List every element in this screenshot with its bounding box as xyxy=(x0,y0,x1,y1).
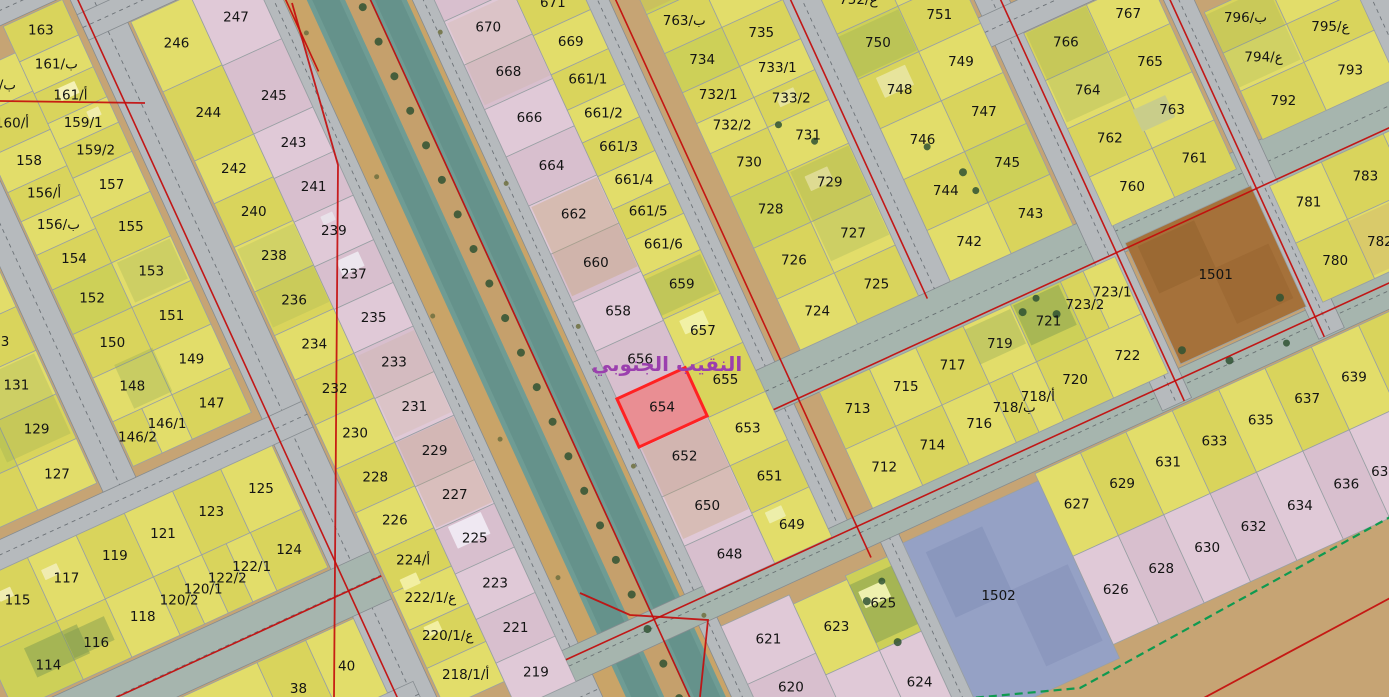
parcel-label-639: 639 xyxy=(1341,370,1367,386)
parcel-label-238: 238 xyxy=(261,248,287,264)
parcel-label-730: 730 xyxy=(736,154,762,170)
parcel-label-724: 724 xyxy=(804,304,830,320)
parcel-label-127: 127 xyxy=(44,466,70,482)
parcel-label-661/4: 661/4 xyxy=(614,172,653,188)
parcel-label-119: 119 xyxy=(102,548,128,564)
place-name-label: النقيب الجنوبي xyxy=(592,352,742,377)
parcel-label-231: 231 xyxy=(401,399,427,415)
parcel-label-726: 726 xyxy=(781,253,807,269)
parcel-label-148: 148 xyxy=(119,378,145,394)
parcel-label-743: 743 xyxy=(1018,206,1044,222)
parcel-label-233: 233 xyxy=(381,354,407,370)
parcel-label-1502: 1502 xyxy=(981,588,1015,604)
parcel-label-762: 762 xyxy=(1097,131,1123,147)
parcel-label-658: 658 xyxy=(605,303,631,319)
parcel-label-158: 158 xyxy=(16,153,42,169)
parcel-label-38: 38 xyxy=(290,681,307,697)
parcel-label-635: 635 xyxy=(1248,412,1274,428)
parcel-label-246: 246 xyxy=(164,35,190,51)
parcel-label-117: 117 xyxy=(54,570,80,586)
parcel-label-764: 764 xyxy=(1075,82,1101,98)
parcel-label-763: 763 xyxy=(1159,102,1185,118)
parcel-label-115: 115 xyxy=(5,593,31,609)
parcel-label-236: 236 xyxy=(281,292,307,308)
parcel-label-225: 225 xyxy=(462,531,488,547)
parcel-label-633: 633 xyxy=(1202,434,1228,450)
parcel-label-161/ب: 161/ب xyxy=(35,56,78,72)
parcel-label-631: 631 xyxy=(1155,455,1181,471)
parcel-label-621: 621 xyxy=(756,632,782,648)
parcel-label-662: 662 xyxy=(561,207,587,223)
parcel-label-749: 749 xyxy=(948,54,974,70)
parcel-label-747: 747 xyxy=(971,104,997,120)
parcel-label-125: 125 xyxy=(248,481,274,497)
parcel-label-765: 765 xyxy=(1137,54,1163,70)
parcel-label-244: 244 xyxy=(195,105,221,121)
parcel-label-767: 767 xyxy=(1115,6,1141,22)
parcel-label-657: 657 xyxy=(690,323,716,339)
parcel-label-152: 152 xyxy=(79,291,105,307)
parcel-label-224/أ: 224/أ xyxy=(396,550,430,568)
parcel-label-1501: 1501 xyxy=(1198,267,1232,283)
parcel-label-649: 649 xyxy=(779,517,805,533)
parcel-label-745: 745 xyxy=(994,155,1020,171)
parcel-label-712: 712 xyxy=(871,459,897,475)
parcel-label-752/ع: 752/ع xyxy=(839,0,877,8)
parcel-label-124: 124 xyxy=(276,542,302,558)
parcel-label-237: 237 xyxy=(341,267,367,283)
parcel-label-623: 623 xyxy=(824,619,850,635)
parcel-label-661/2: 661/2 xyxy=(584,106,623,122)
parcel-label-155: 155 xyxy=(118,219,144,235)
parcel-label-629: 629 xyxy=(1109,476,1135,492)
parcel-label-235: 235 xyxy=(361,310,387,326)
parcel-label-243: 243 xyxy=(281,135,307,151)
parcel-label-159/2: 159/2 xyxy=(76,142,115,158)
parcel-label-750: 750 xyxy=(865,35,891,51)
parcel-label-218/1/أ: 218/1/أ xyxy=(442,665,489,683)
parcel-label-228: 228 xyxy=(362,470,388,486)
parcel-label-131: 131 xyxy=(4,378,30,394)
map-viewport[interactable]: 163161/ب161/أ159/1159/215715515315114914… xyxy=(0,0,1389,697)
parcel-label-146/1: 146/1 xyxy=(148,416,187,432)
parcel-label-792: 792 xyxy=(1270,93,1296,109)
parcel-label-794/ع: 794/ع xyxy=(1244,50,1282,66)
parcel-label-118: 118 xyxy=(130,609,156,625)
parcel-label-664: 664 xyxy=(539,158,565,174)
parcel-label-161/أ: 161/أ xyxy=(53,85,87,103)
parcel-label-247: 247 xyxy=(223,9,249,25)
parcel-label-223: 223 xyxy=(482,575,508,591)
parcel-label-783: 783 xyxy=(1352,169,1378,185)
parcel-label-723/1: 723/1 xyxy=(1093,285,1132,301)
parcel-label-661/5: 661/5 xyxy=(629,203,668,219)
parcel-label-634: 634 xyxy=(1287,498,1313,514)
parcel-label-653: 653 xyxy=(735,421,761,437)
parcel-label-116: 116 xyxy=(83,635,109,651)
parcel-label-719: 719 xyxy=(987,336,1013,352)
parcel-label-240: 240 xyxy=(241,204,267,220)
parcel-label-652: 652 xyxy=(672,448,698,464)
parcel-label-782: 782 xyxy=(1367,234,1389,250)
parcel-label-625: 625 xyxy=(870,596,896,612)
parcel-label-638: 638 xyxy=(1371,464,1389,480)
parcel-label-121: 121 xyxy=(150,526,176,542)
parcel-label-660: 660 xyxy=(583,255,609,271)
parcel-label-156/أ: 156/أ xyxy=(27,184,61,202)
parcel-label-157: 157 xyxy=(99,177,125,193)
parcel-label-147: 147 xyxy=(199,396,225,412)
parcel-label-650: 650 xyxy=(694,498,720,514)
parcel-label-732/2: 732/2 xyxy=(713,118,752,134)
parcel-label-630: 630 xyxy=(1194,540,1220,556)
parcel-label-620: 620 xyxy=(778,680,804,696)
parcel-label-720: 720 xyxy=(1062,372,1088,388)
parcel-label-727: 727 xyxy=(840,226,866,242)
parcel-label-781: 781 xyxy=(1296,195,1322,211)
parcel-label-153: 153 xyxy=(138,264,164,280)
parcel-label-671: 671 xyxy=(540,0,566,11)
parcel-label-129: 129 xyxy=(24,422,50,438)
parcel-label-245: 245 xyxy=(261,88,287,104)
parcel-label-239: 239 xyxy=(321,223,347,239)
parcel-label-156/ب: 156/ب xyxy=(37,217,80,233)
parcel-label-122/1: 122/1 xyxy=(232,559,271,575)
parcel-label-230: 230 xyxy=(342,426,368,442)
parcel-label-232: 232 xyxy=(322,381,348,397)
parcel-label-626: 626 xyxy=(1103,582,1129,598)
parcel-label-227: 227 xyxy=(442,487,468,503)
parcel-label-242: 242 xyxy=(221,161,247,177)
parcel-label-732/1: 732/1 xyxy=(699,87,738,103)
parcel-label-731: 731 xyxy=(795,127,821,143)
parcel-label-627: 627 xyxy=(1064,497,1090,513)
parcel-label-796/ب: 796/ب xyxy=(1224,10,1267,26)
parcel-label-154: 154 xyxy=(61,251,87,267)
parcel-label-661/1: 661/1 xyxy=(568,71,607,87)
parcel-label-715: 715 xyxy=(893,379,919,395)
parcel-label-226: 226 xyxy=(382,512,408,528)
parcel-label-670: 670 xyxy=(475,20,501,36)
parcel-label-718/أ: 718/أ xyxy=(1021,387,1055,405)
parcel-label-793: 793 xyxy=(1337,62,1363,78)
parcel-label-751: 751 xyxy=(926,7,952,23)
parcel-label-728: 728 xyxy=(758,202,784,218)
parcel-label-160/ب: 160/ب xyxy=(0,78,16,94)
parcel-label-766: 766 xyxy=(1053,35,1079,51)
parcel-label-733/1: 733/1 xyxy=(758,60,797,76)
parcel-label-666: 666 xyxy=(517,110,543,126)
parcel-label-163: 163 xyxy=(28,23,54,39)
parcel-label-648: 648 xyxy=(717,547,743,563)
parcel-label-721: 721 xyxy=(1036,314,1062,330)
parcel-label-628: 628 xyxy=(1148,561,1174,577)
map-canvas[interactable]: 163161/ب161/أ159/1159/215715515315114914… xyxy=(0,0,1389,697)
parcel-label-729: 729 xyxy=(817,175,843,191)
parcel-label-734: 734 xyxy=(689,52,715,68)
parcel-label-624: 624 xyxy=(907,675,933,691)
parcel-label-725: 725 xyxy=(863,276,889,292)
parcel-label-746: 746 xyxy=(910,132,936,148)
parcel-label-133: 133 xyxy=(0,334,9,350)
parcel-label-717: 717 xyxy=(940,358,966,374)
parcel-label-221: 221 xyxy=(503,620,529,636)
parcel-label-714: 714 xyxy=(919,437,945,453)
parcel-label-651: 651 xyxy=(757,468,783,484)
parcel-label-241: 241 xyxy=(301,179,327,195)
parcel-label-632: 632 xyxy=(1241,519,1267,535)
parcel-label-761: 761 xyxy=(1181,151,1207,167)
parcel-label-661/3: 661/3 xyxy=(599,139,638,155)
parcel-label-744: 744 xyxy=(933,183,959,199)
parcel-label-661/6: 661/6 xyxy=(644,237,683,253)
parcel-label-636: 636 xyxy=(1333,477,1359,493)
parcel-label-735: 735 xyxy=(748,25,774,41)
parcel-label-722: 722 xyxy=(1115,348,1141,364)
parcel-label-123: 123 xyxy=(198,504,224,520)
parcel-label-229: 229 xyxy=(422,443,448,459)
parcel-label-220/1/ع: 220/1/ع xyxy=(422,628,474,644)
parcel-label-713: 713 xyxy=(845,401,871,417)
parcel-label-219: 219 xyxy=(523,664,549,680)
parcel-label-760: 760 xyxy=(1119,179,1145,195)
parcel-label-40: 40 xyxy=(338,659,355,675)
parcel-label-149: 149 xyxy=(178,351,204,367)
parcel-label-151: 151 xyxy=(159,308,185,324)
parcel-label-222/1/ع: 222/1/ع xyxy=(405,590,457,606)
parcel-label-150: 150 xyxy=(99,335,125,351)
parcel-label-763/ب: 763/ب xyxy=(663,13,706,29)
parcel-label-742: 742 xyxy=(956,234,982,250)
parcel-label-637: 637 xyxy=(1294,391,1320,407)
parcel-label-654: 654 xyxy=(649,399,675,415)
parcel-label-733/2: 733/2 xyxy=(772,91,811,107)
parcel-label-160/أ: 160/أ xyxy=(0,114,29,132)
parcel-label-716: 716 xyxy=(966,416,992,432)
parcel-label-659: 659 xyxy=(669,277,695,293)
parcel-label-114: 114 xyxy=(36,658,62,674)
parcel-label-780: 780 xyxy=(1322,253,1348,269)
parcel-label-795/ع: 795/ع xyxy=(1311,19,1349,35)
parcel-label-234: 234 xyxy=(301,336,327,352)
parcel-label-748: 748 xyxy=(887,82,913,98)
parcel-label-668: 668 xyxy=(496,64,522,80)
parcel-label-669: 669 xyxy=(558,34,584,50)
parcel-label-159/1: 159/1 xyxy=(64,115,103,131)
